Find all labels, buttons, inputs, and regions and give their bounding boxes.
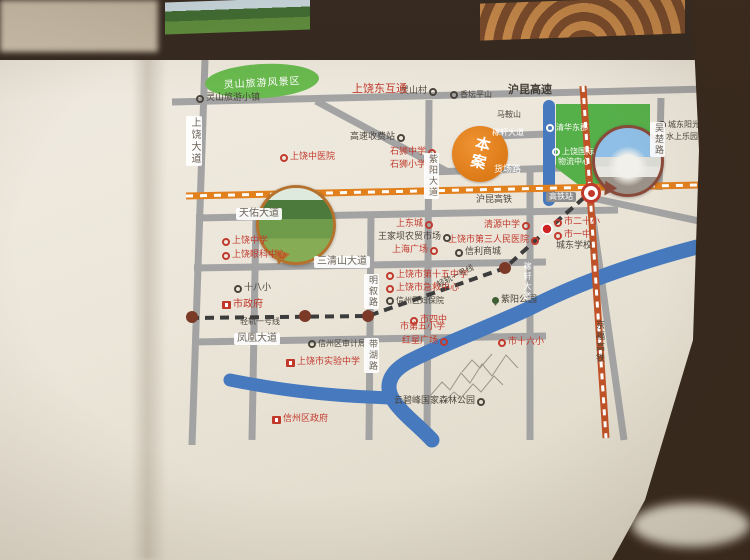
- government-icon: [222, 301, 231, 309]
- label-shenzhou-audit-bureau: 信州区审计局: [308, 340, 366, 348]
- light-rail-node: [362, 310, 374, 322]
- label-rail-jingfu-hsr: 京福高铁: [594, 320, 603, 364]
- poi-ring-icon: [222, 238, 230, 246]
- label-wangjiaba-market: 王家坝农贸市场: [378, 233, 451, 242]
- poi-ring-icon: [498, 339, 506, 347]
- label-road-jiaxuan-ave-v: 稼轩大道: [523, 262, 531, 302]
- label-rail-light-rail-1a: 轻轨一号线: [240, 318, 280, 326]
- label-ershixiao-school-text: 市二十小: [564, 218, 600, 227]
- mountain-line-1: [430, 355, 518, 396]
- label-qinghua-east-estate: 清华东郡: [546, 124, 588, 132]
- label-lingshan-town-text: 灵山旅游小镇: [206, 94, 260, 103]
- label-third-peoples-hospital-text: 上饶市第三人民医院: [448, 236, 529, 245]
- label-chengdong-school: 城东学校: [556, 242, 592, 251]
- government-icon: [286, 359, 295, 367]
- label-maanshan: 马鞍山: [497, 111, 521, 119]
- label-road-ziyang-ave-text: 紫阳大道: [427, 154, 436, 198]
- label-city-government-text: 市政府: [233, 300, 263, 310]
- label-xinli-mall-text: 信利商城: [465, 248, 501, 257]
- light-rail-node: [499, 262, 511, 274]
- label-yizhong-school-text: 市一中: [564, 231, 591, 240]
- label-shishi-middle-school-text: 石狮中学: [390, 148, 426, 157]
- label-shanghai-plaza-text: 上海广场: [392, 246, 428, 255]
- mountain-line-3: [462, 354, 492, 372]
- poi-ring-icon: [308, 340, 316, 348]
- label-yunbifeng-forest-park: 云碧峰国家森林公园: [394, 397, 485, 406]
- project-label: 本案: [465, 134, 494, 174]
- government-icon: [272, 416, 281, 424]
- label-qinghua-east-estate-text: 清华东郡: [556, 124, 588, 132]
- label-maanshan-text: 马鞍山: [497, 111, 521, 119]
- poi-ring-icon: [425, 221, 433, 229]
- label-shibaxiao-school-text: 十八小: [244, 284, 271, 293]
- label-road-mingxu-rd-text: 明叙路: [367, 275, 376, 308]
- poi-ring-icon: [531, 237, 539, 245]
- road-sanqingshan-ave: [194, 262, 546, 268]
- label-fifth-primary-school-text: 市第五小学: [400, 323, 445, 332]
- poi-ring-icon: [386, 297, 394, 305]
- label-emergency-center: 上饶市急救中心: [386, 284, 459, 293]
- label-shangrao-tcm-hospital: 上饶中医院: [280, 153, 335, 162]
- label-chengdong-school-text: 城东学校: [556, 242, 592, 251]
- label-xiangtanping-hill: 香坛平山: [450, 91, 492, 99]
- label-shangrao-east-interchange: 上饶东互通: [352, 83, 407, 94]
- label-chengdong-sunshine-text: 城东阳光: [668, 121, 700, 129]
- label-intl-logistics-line2-text: 物流中心: [558, 158, 590, 166]
- poi-ring-icon: [554, 232, 562, 240]
- label-water-park-text: 水上乐园: [666, 133, 698, 141]
- poi-ring-icon: [429, 88, 437, 96]
- label-hongxing-plaza-text: 红星广场: [402, 337, 438, 346]
- label-road-fenghuang-ave-text: 凤凰大道: [237, 334, 277, 344]
- label-experimental-middle-school-text: 上饶市实验中学: [297, 358, 360, 367]
- label-shenzhou-audit-bureau-text: 信州区审计局: [318, 340, 366, 348]
- label-fifth-primary-school: 市第五小学: [400, 323, 445, 332]
- label-toll-station: 高速收费站: [350, 133, 405, 142]
- poi-ring-icon: [554, 219, 562, 227]
- label-city-government: 市政府: [222, 300, 263, 310]
- label-road-tianyou-ave-text: 天佑大道: [239, 209, 279, 219]
- label-shangrao-tcm-hospital-text: 上饶中医院: [290, 153, 335, 162]
- light-rail-red-stop: [542, 224, 552, 234]
- light-rail-node: [186, 311, 198, 323]
- hsr-station-marker-dot: [588, 190, 595, 197]
- label-yizhong-school: 市一中: [554, 231, 591, 240]
- poi-ring-icon: [522, 222, 530, 230]
- label-ershixiao-school: 市二十小: [554, 218, 600, 227]
- label-shangdongcheng: 上东城: [396, 220, 433, 229]
- label-xinli-mall: 信利商城: [455, 248, 501, 257]
- label-road-hukun-expressway: 沪昆高速: [508, 84, 552, 95]
- label-road-jiaxuan-ave-h: 稼轩大道: [492, 129, 524, 137]
- label-road-hukun-expressway-text: 沪昆高速: [508, 84, 552, 95]
- label-road-shangrao-ave-text: 上饶大道: [189, 117, 199, 165]
- poi-ring-icon: [430, 247, 438, 255]
- blurred-object-bottom-right: [632, 503, 750, 547]
- poi-ring-icon: [234, 285, 242, 293]
- label-hsr-station-chip-text: 高铁站: [549, 193, 573, 201]
- label-road-sanqingshan-ave: 三清山大道: [314, 256, 370, 268]
- label-rail-hukun-hsr-text: 沪昆高铁: [476, 196, 512, 205]
- label-road-wuchu-rd: 吴楚路: [650, 122, 665, 157]
- label-shangrao-middle-school: 上饶中学: [222, 237, 268, 246]
- road-mingxu-daihu: [369, 216, 371, 440]
- label-water-park: 水上乐园: [666, 133, 698, 141]
- label-shangrao-middle-school-text: 上饶中学: [232, 237, 268, 246]
- poi-ring-icon: [455, 249, 463, 257]
- label-road-jiaxuan-ave-h-text: 稼轩大道: [492, 129, 524, 137]
- poi-ring-icon: [477, 398, 485, 406]
- label-intl-logistics-line1: 上饶国际: [552, 148, 594, 156]
- label-rail-light-rail-1a-text: 轻轨一号线: [240, 318, 280, 326]
- poi-ring-icon: [386, 272, 394, 280]
- poi-ring-icon: [546, 124, 554, 132]
- label-emergency-center-text: 上饶市急救中心: [396, 284, 459, 293]
- label-shangdongcheng-text: 上东城: [396, 220, 423, 229]
- blurred-page-corner: [0, 0, 158, 52]
- label-road-huochang-rd: 货场路: [494, 166, 521, 175]
- label-lingshan-town: 灵山旅游小镇: [196, 94, 260, 103]
- poi-ring-icon: [222, 252, 230, 260]
- label-experimental-middle-school: 上饶市实验中学: [286, 358, 360, 367]
- label-road-wuchu-rd-text: 吴楚路: [653, 123, 662, 156]
- label-qingyuan-middle-school: 清源中学: [484, 221, 530, 230]
- hsr-station-marker-icon: [581, 183, 601, 203]
- scenic-area-label: 灵山旅游风景区: [223, 71, 301, 90]
- label-shenzhou-district-government: 信州区政府: [272, 415, 328, 424]
- tree-icon: [492, 297, 499, 304]
- label-shangrao-eye-center-text: 上饶眼科中心: [232, 251, 286, 260]
- poi-ring-icon: [280, 154, 288, 162]
- label-shishi-primary-school-text: 石狮小学: [390, 161, 426, 170]
- label-toll-station-text: 高速收费站: [350, 133, 395, 142]
- label-shenzhou-fubao-hospital-text: 信州区妇保院: [396, 297, 444, 305]
- bridge-photo-strip: [480, 0, 685, 41]
- label-shibaxiao-school: 十八小: [234, 284, 271, 293]
- poi-ring-icon: [552, 148, 560, 156]
- label-hongxing-plaza: 红星广场: [402, 337, 448, 346]
- label-road-ziyang-ave: 紫阳大道: [424, 153, 439, 199]
- label-shenzhou-fubao-hospital: 信州区妇保院: [386, 297, 444, 305]
- label-wangjiaba-market-text: 王家坝农贸市场: [378, 233, 441, 242]
- poi-ring-icon: [450, 91, 458, 99]
- light-rail-node: [299, 310, 311, 322]
- label-shiliuxiao-school: 市十六小: [498, 338, 544, 347]
- label-road-daihu-rd-text: 带湖路: [367, 339, 376, 372]
- label-road-huochang-rd-text: 货场路: [494, 166, 521, 175]
- label-xiangtanping-hill-text: 香坛平山: [460, 91, 492, 99]
- label-road-shangrao-ave: 上饶大道: [186, 116, 202, 166]
- label-intl-logistics-line1-text: 上饶国际: [562, 148, 594, 156]
- label-road-tianyou-ave: 天佑大道: [236, 208, 282, 220]
- label-road-daihu-rd: 带湖路: [364, 338, 379, 373]
- label-road-jiaxuan-ave-v-text: 稼轩大道: [523, 262, 531, 302]
- label-road-sanqingshan-ave-text: 三清山大道: [317, 257, 367, 267]
- label-rail-hukun-hsr: 沪昆高铁: [476, 196, 512, 205]
- label-shangrao-eye-center: 上饶眼科中心: [222, 251, 286, 260]
- poi-ring-icon: [386, 285, 394, 293]
- label-rail-jingfu-hsr-text: 京福高铁: [594, 320, 603, 364]
- label-third-peoples-hospital: 上饶市第三人民医院: [448, 236, 539, 245]
- label-shangrao-east-interchange-text: 上饶东互通: [352, 83, 407, 94]
- poi-ring-icon: [196, 95, 204, 103]
- label-shenzhou-district-government-text: 信州区政府: [283, 415, 328, 424]
- label-yunbifeng-forest-park-text: 云碧峰国家森林公园: [394, 397, 475, 406]
- label-qingyuan-middle-school-text: 清源中学: [484, 221, 520, 230]
- poi-ring-icon: [440, 338, 448, 346]
- label-road-mingxu-rd: 明叙路: [364, 274, 379, 309]
- label-shiliuxiao-school-text: 市十六小: [508, 338, 544, 347]
- mountain-sketch: [430, 354, 518, 402]
- label-shanghai-plaza: 上海广场: [392, 246, 438, 255]
- golf-photo-strip: [165, 0, 310, 35]
- photographed-map-page: 灵山旅游风景区 本案 灵山旅游小镇灵山村香坛平山高速收费站马鞍山王家坝农贸市场信…: [0, 0, 750, 560]
- poi-ring-icon: [397, 134, 405, 142]
- label-road-fenghuang-ave: 凤凰大道: [234, 333, 280, 345]
- label-hsr-station-chip: 高铁站: [546, 192, 576, 202]
- label-intl-logistics-line2: 物流中心: [558, 158, 590, 166]
